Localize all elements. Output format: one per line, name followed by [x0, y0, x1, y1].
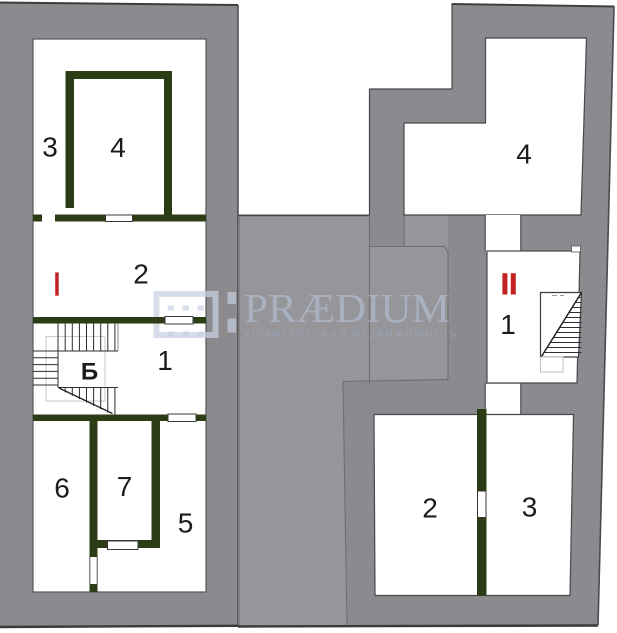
svg-text:1: 1 — [500, 309, 516, 340]
svg-text:4: 4 — [110, 132, 126, 163]
svg-text:Б: Б — [81, 359, 98, 386]
svg-text:3: 3 — [42, 132, 58, 163]
svg-text:7: 7 — [117, 471, 133, 502]
svg-text:2: 2 — [422, 493, 438, 524]
svg-text:1: 1 — [157, 345, 173, 376]
svg-text:5: 5 — [178, 508, 194, 539]
svg-text:6: 6 — [54, 473, 70, 504]
svg-text:4: 4 — [516, 139, 532, 170]
svg-text:2: 2 — [133, 259, 149, 290]
svg-text:КОММЕРЧЕСКАЯ НЕДВИЖИМОСТЬ: КОММЕРЧЕСКАЯ НЕДВИЖИМОСТЬ — [244, 329, 458, 341]
svg-text:3: 3 — [522, 492, 538, 523]
svg-text:PRÆDIUM: PRÆDIUM — [244, 285, 450, 331]
